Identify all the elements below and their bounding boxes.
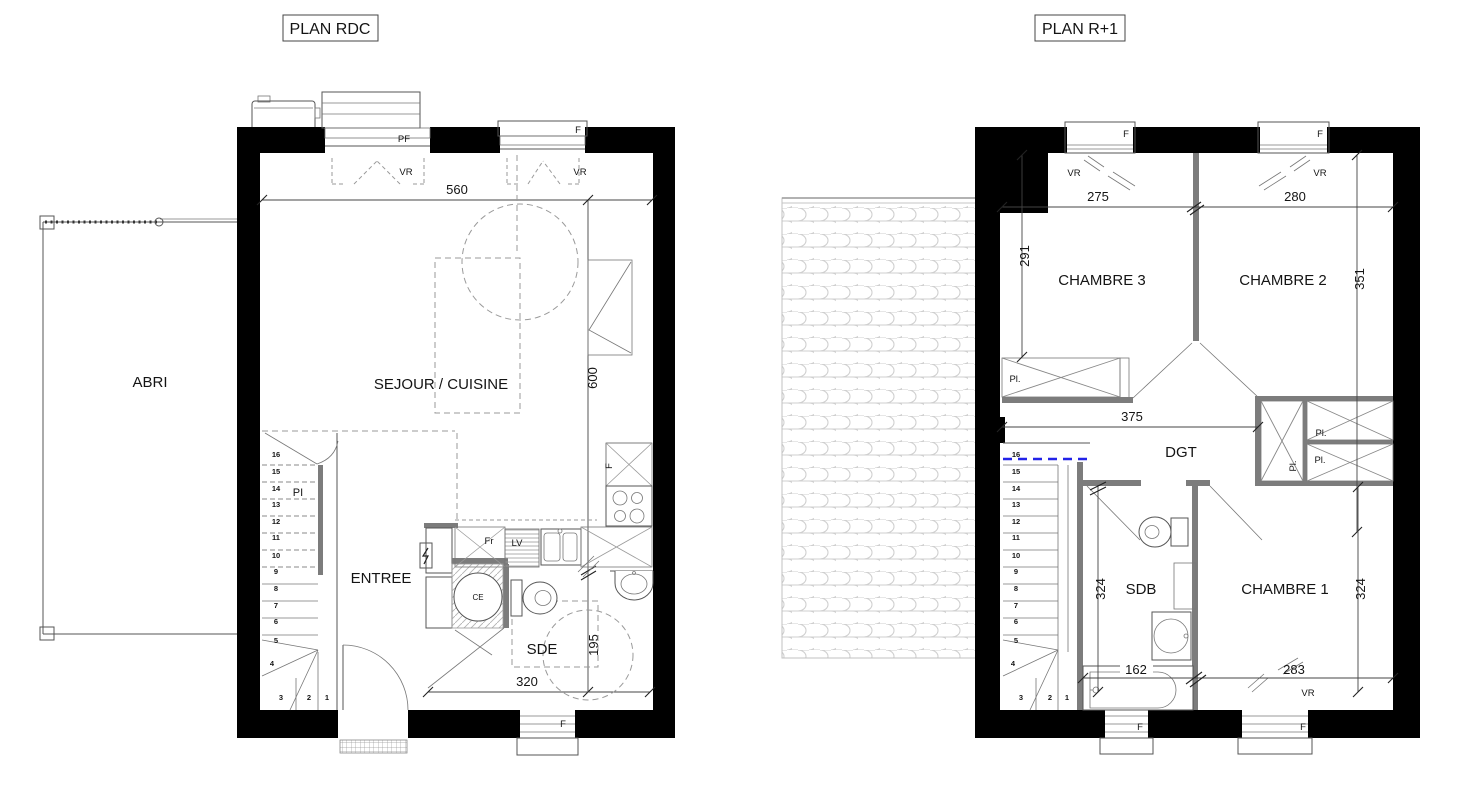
- stair-number: 11: [272, 533, 280, 542]
- room-label-entree: ENTREE: [351, 570, 412, 587]
- stair-number: 13: [1012, 500, 1020, 509]
- sdb-washbasin: [1152, 612, 1191, 660]
- stair-number: 7: [1014, 601, 1018, 610]
- window-swing-marks: [1259, 156, 1310, 190]
- dim-291: 291: [1017, 245, 1032, 267]
- table-dashed: [462, 204, 578, 320]
- doormat: [340, 740, 407, 753]
- stair-number: 6: [274, 617, 278, 626]
- dim-560: 560: [446, 182, 468, 197]
- stair-number: 15: [272, 467, 280, 476]
- shutter-label-vr: VR: [1067, 168, 1080, 179]
- room-label-chambre1: CHAMBRE 1: [1241, 581, 1329, 598]
- stair-number: 14: [272, 484, 281, 493]
- shutter-label-vr: VR: [399, 167, 412, 178]
- window-label-f: F: [1317, 129, 1323, 140]
- dim-275: 275: [1087, 189, 1109, 204]
- window-label-f: F: [1300, 722, 1306, 733]
- window-label-f: F: [1137, 722, 1143, 733]
- cooktop: [606, 486, 652, 526]
- stair-number: 4: [270, 659, 275, 668]
- room-label-sdb: SDB: [1126, 581, 1157, 598]
- rdc-staircase: 16 15 14 13 12 11 10 9 8 7 6 5 4 3 2 1 P…: [262, 433, 338, 710]
- closets-right: Pl. Pl. Pl.: [1255, 396, 1393, 486]
- stair-number: 16: [1012, 450, 1020, 459]
- stair-number: 14: [1012, 484, 1021, 493]
- shutter-label-vr: VR: [1313, 168, 1326, 179]
- room-label-dgt: DGT: [1165, 444, 1197, 461]
- window-swing-marks: [1084, 156, 1135, 190]
- shutter-label-vr: VR: [1301, 688, 1314, 699]
- closet-label-pl: Pl.: [1288, 460, 1299, 471]
- floorplan-drawing: PLAN RDC ABRI PF VR: [0, 0, 1457, 800]
- stair-number: 8: [1014, 584, 1018, 593]
- window-label-f: F: [1123, 129, 1129, 140]
- stair-number: 12: [1012, 517, 1020, 526]
- stair-number: 13: [272, 500, 280, 509]
- sdb-toilet: [1139, 517, 1188, 547]
- rdc-walls: [237, 127, 675, 738]
- partition-ch3-ch2: [1193, 153, 1199, 341]
- closet-label-pl: Pl.: [1314, 455, 1325, 466]
- plan-r1-title: PLAN R+1: [1042, 21, 1118, 38]
- stair-number: 8: [274, 584, 278, 593]
- room-label-sde: SDE: [527, 641, 558, 658]
- stair-number: 9: [274, 567, 278, 576]
- sdb-door-leaf: [1087, 486, 1140, 540]
- r1-staircase: 16 15 14 13 12 11 10 9 8 7 6 5 4 3 2 1: [1003, 443, 1090, 710]
- room-label-abri: ABRI: [132, 374, 167, 391]
- closet-ch3: Pl.: [1002, 358, 1133, 403]
- dim-283: 283: [1283, 662, 1305, 677]
- stair-number: 1: [1065, 693, 1069, 702]
- oven-label-f: F: [604, 463, 615, 469]
- dim-600: 600: [585, 367, 600, 389]
- stair-number: 16: [272, 450, 280, 459]
- stair-number: 9: [1014, 567, 1018, 576]
- abri-area: ABRI: [40, 216, 237, 640]
- stair-number: 2: [307, 693, 311, 702]
- plan-r1: PLAN R+1 F VR F VR F: [782, 15, 1420, 754]
- dim-280: 280: [1284, 189, 1306, 204]
- closet-label-pl: Pl.: [1009, 374, 1020, 385]
- stair-number: 1: [325, 693, 329, 702]
- dim-351: 351: [1352, 268, 1367, 290]
- window-label-pf: PF: [398, 134, 410, 145]
- roof-area: [782, 198, 977, 658]
- window-label-f: F: [560, 719, 566, 730]
- plan-rdc-title: PLAN RDC: [290, 21, 371, 38]
- stair-number: 11: [1012, 533, 1020, 542]
- dim-195: 195: [586, 634, 601, 656]
- sde-toilet: [511, 580, 557, 616]
- ch1-door-leaf: [1210, 486, 1262, 540]
- dishwasher-label-lv: LV: [512, 538, 524, 549]
- stair-number: 3: [279, 693, 283, 702]
- dim-162: 162: [1125, 662, 1147, 677]
- kitchen: Fr LV F: [455, 443, 652, 577]
- bedroom-door-leaves: [1133, 343, 1259, 398]
- closet-label-pl: Pl.: [1315, 428, 1326, 439]
- stair-number: 15: [1012, 467, 1020, 476]
- stair-number: 3: [1019, 693, 1023, 702]
- closet-label-pi: PI: [293, 487, 303, 499]
- sde-washbasin: [610, 571, 653, 600]
- stair-number: 4: [1011, 659, 1016, 668]
- fridge-label-fr: Fr: [485, 536, 494, 547]
- window-pf: PF VR: [322, 92, 430, 184]
- label-ce: CE: [472, 593, 483, 602]
- window-swing-dashes: [507, 158, 579, 184]
- corner-unit: [588, 260, 632, 355]
- dim-324-ch1: 324: [1353, 578, 1368, 600]
- plan-rdc: PLAN RDC ABRI PF VR: [40, 15, 675, 755]
- stair-number: 5: [1014, 636, 1018, 645]
- shutter-label-vr: VR: [573, 167, 586, 178]
- window-label-f: F: [575, 125, 581, 136]
- stair-number: 2: [1048, 693, 1052, 702]
- room-label-sejour-cuisine: SEJOUR / CUISINE: [374, 376, 508, 393]
- stair-number: 7: [274, 601, 278, 610]
- kitchen-sink: [541, 529, 581, 565]
- ch1-door-jamb: [1195, 480, 1210, 486]
- room-label-chambre2: CHAMBRE 2: [1239, 272, 1327, 289]
- stair-number: 12: [272, 517, 280, 526]
- stair-number: 10: [1012, 551, 1020, 560]
- dim-375: 375: [1121, 409, 1143, 424]
- dim-324-sdb: 324: [1093, 578, 1108, 600]
- floorplan-sheet: PLAN RDC ABRI PF VR: [0, 0, 1457, 800]
- stair-number: 6: [1014, 617, 1018, 626]
- dim-320: 320: [516, 674, 538, 689]
- stair-number: 5: [274, 636, 278, 645]
- stair-number: 10: [272, 551, 280, 560]
- room-label-chambre3: CHAMBRE 3: [1058, 272, 1146, 289]
